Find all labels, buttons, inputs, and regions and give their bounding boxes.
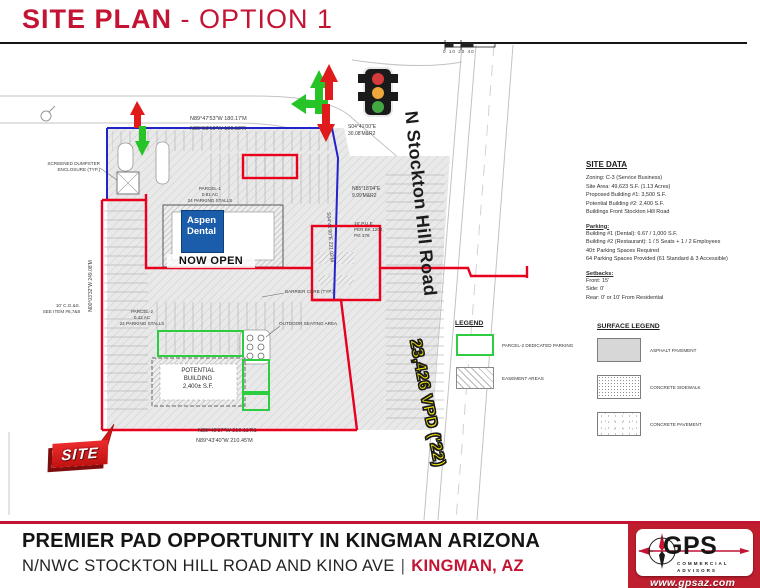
dim-south-2: N89°43'40"W 210.45'M <box>196 438 253 445</box>
site-callout-badge: SITE <box>52 440 109 468</box>
dim-north-1: N89°47'53"W 180.17'M <box>190 116 247 123</box>
potential-building-label: POTENTIAL BUILDING 2,400± S.F. <box>160 367 236 391</box>
legend-label-parcel2-parking: PARCEL-2 DEDICATED PARKING <box>502 343 573 348</box>
site-data-parking: Building #1 (Dental): 6.67 / 1,000 S.F. … <box>586 230 758 264</box>
site-callout-text: SITE <box>61 444 99 464</box>
footer-city: KINGMAN, AZ <box>411 557 524 575</box>
road-centerline <box>456 45 494 520</box>
gps-logo-panel: GPS COMMERCIAL ADVISORS www.gpsaz.com <box>628 524 760 588</box>
aspen-dental-logo: Aspen Dental <box>181 210 224 253</box>
surface-swatch-sidewalk <box>597 375 641 399</box>
footer-separator: | <box>401 557 406 575</box>
surface-legend-title: SURFACE LEGEND <box>597 323 660 330</box>
surface-label-sidewalk: CONCRETE SIDEWALK <box>650 385 701 390</box>
parcel-1-label: PARCEL-1 0.81 AC 24 PARKING STALLS <box>182 186 238 204</box>
surface-label-asphalt: ASPHALT PAVEMENT <box>650 348 696 353</box>
dumpster-enclosure <box>100 168 139 194</box>
parcel-2-label: PARCEL-2 0.42 AC 24 PARKING STALLS <box>116 309 168 327</box>
legend-title: LEGEND <box>455 320 483 327</box>
dim-jog: S04°41'00"E 30.08'M&R2 <box>348 124 376 137</box>
monument-icon <box>41 106 55 121</box>
site-data-panel: SITE DATA Zoning: C-3 (Service Business)… <box>586 160 758 302</box>
footer-subline: N/NWC STOCKTON HILL ROAD AND KINO AVE|KI… <box>22 557 524 576</box>
gps-tagline: COMMERCIAL ADVISORS <box>677 561 729 575</box>
surface-swatch-asphalt <box>597 338 641 362</box>
footer-headline: PREMIER PAD OPPORTUNITY IN KINGMAN ARIZO… <box>22 530 540 553</box>
gps-website-link[interactable]: www.gpsaz.com <box>650 577 735 588</box>
surface-swatch-concrete <box>597 412 641 436</box>
footer-address: N/NWC STOCKTON HILL ROAD AND KINO AVE <box>22 557 395 575</box>
gps-wordmark: GPS <box>663 532 717 561</box>
site-data-setbacks: Front: 15' Side: 0' Rear: 0' or 10' From… <box>586 277 758 303</box>
traffic-light-icon <box>358 68 398 116</box>
dim-north-2: N89°58'10"W 180.52'R <box>190 126 246 133</box>
aspen-line2: Dental <box>187 227 223 238</box>
dim-west: N00°03'32"W 249.08'M <box>88 227 94 345</box>
site-plan-flyer: SITE PLAN - OPTION 1 <box>0 0 760 588</box>
dim-northeast: N85°18'04"E 9.99'M&R2 <box>352 186 380 199</box>
gps-logo-card: GPS COMMERCIAL ADVISORS <box>636 529 753 576</box>
dim-pue: 16' P.U.E. PER BK 1202, PG 376 <box>354 221 384 239</box>
note-dumpster: SCREENED DUMPSTER ENCLOSURE (TYP.) <box>38 161 100 173</box>
legend-label-easement: EASEMENT AREAS <box>502 376 544 381</box>
note-cgs: 10' C.G.&S. SEE ITEM #6,7&8 <box>18 303 80 315</box>
now-open-label: NOW OPEN <box>167 254 255 268</box>
surface-label-concrete: CONCRETE PAVEMENT <box>650 422 702 427</box>
legend-swatch-easement <box>456 367 494 389</box>
dim-south-1: N89°49'37"W 210.11'R1 <box>198 428 257 435</box>
legend-swatch-parcel2-parking <box>456 334 494 356</box>
site-data-title: SITE DATA <box>586 160 758 169</box>
site-data-general: Zoning: C-3 (Service Business) Site Area… <box>586 174 758 217</box>
note-outdoor-seating: OUTDOOR SEATING AREA <box>279 321 337 327</box>
scale-ticks: 0 10 20 40 <box>443 49 475 55</box>
note-barrier-curb: BARRIER CURB (TYP.) <box>285 289 334 295</box>
